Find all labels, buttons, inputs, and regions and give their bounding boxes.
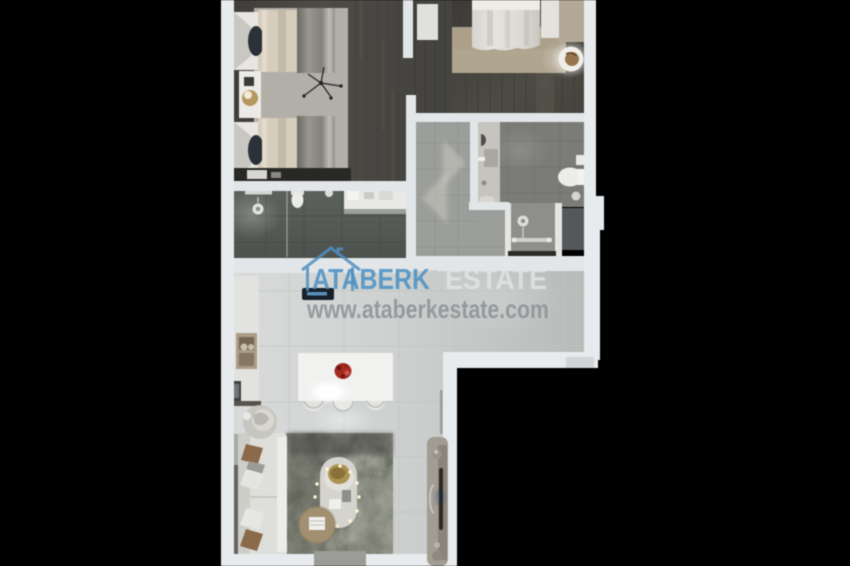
svg-text:ESTATE: ESTATE [445, 264, 547, 296]
svg-text:REAL: REAL [430, 267, 439, 289]
svg-text:www.ataberkestate.com: www.ataberkestate.com [306, 294, 549, 324]
svg-text:ATABERK: ATABERK [312, 264, 430, 296]
